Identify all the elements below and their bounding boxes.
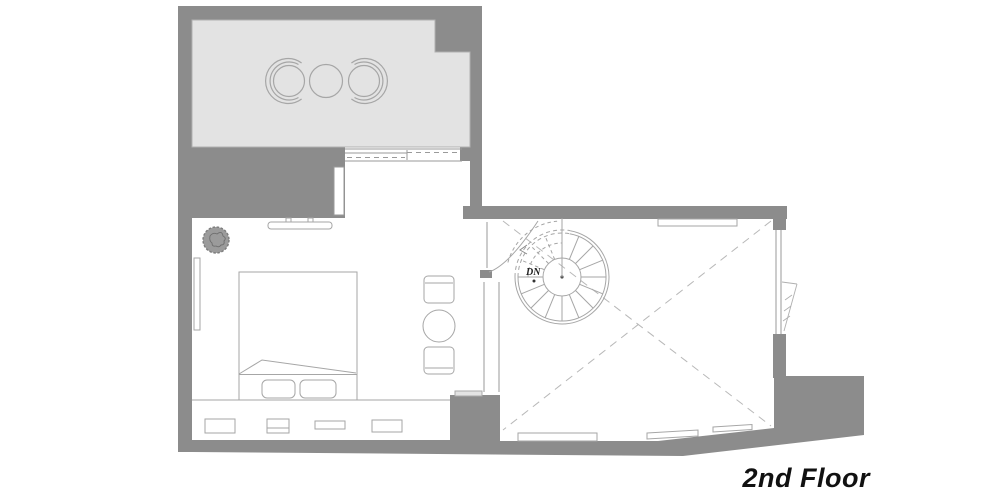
spiral-staircase-icon xyxy=(508,218,609,324)
wall-stairroom-top xyxy=(463,206,787,219)
floor-title: 2nd Floor xyxy=(700,463,870,493)
storage-drawers-icon xyxy=(205,419,402,433)
partition-cap xyxy=(455,391,482,396)
terrace-floor xyxy=(192,20,470,147)
tv-icon xyxy=(268,218,332,229)
low-sill-right xyxy=(713,425,752,433)
wardrobe-icon xyxy=(194,258,200,330)
wall-left xyxy=(178,20,192,452)
sliding-door-icon xyxy=(334,149,462,215)
side-chair-icon xyxy=(424,347,454,374)
stair-direction: DN xyxy=(525,267,541,283)
wall-right-upper xyxy=(773,219,786,230)
high-window-top xyxy=(658,219,737,226)
round-side-table-icon xyxy=(423,310,455,342)
wall-right-lower xyxy=(773,334,786,378)
bedroom-furniture xyxy=(192,218,455,433)
stairroom-trim xyxy=(518,219,752,441)
double-bed-icon xyxy=(239,272,357,400)
low-sill-left xyxy=(518,433,597,441)
floor-plan-page: DN 2nd Floor xyxy=(0,0,1000,500)
stair-direction-dot xyxy=(533,280,536,283)
void-cross-icon xyxy=(503,221,771,430)
side-chair-icon xyxy=(424,276,454,303)
floor-plan-drawing: DN xyxy=(0,0,1000,500)
wall-terrace-bedroom xyxy=(192,147,345,218)
potted-plant-icon xyxy=(203,227,229,253)
partition-lines xyxy=(484,222,499,392)
stair-direction-label: DN xyxy=(525,267,541,278)
casement-window-icon xyxy=(773,230,797,334)
